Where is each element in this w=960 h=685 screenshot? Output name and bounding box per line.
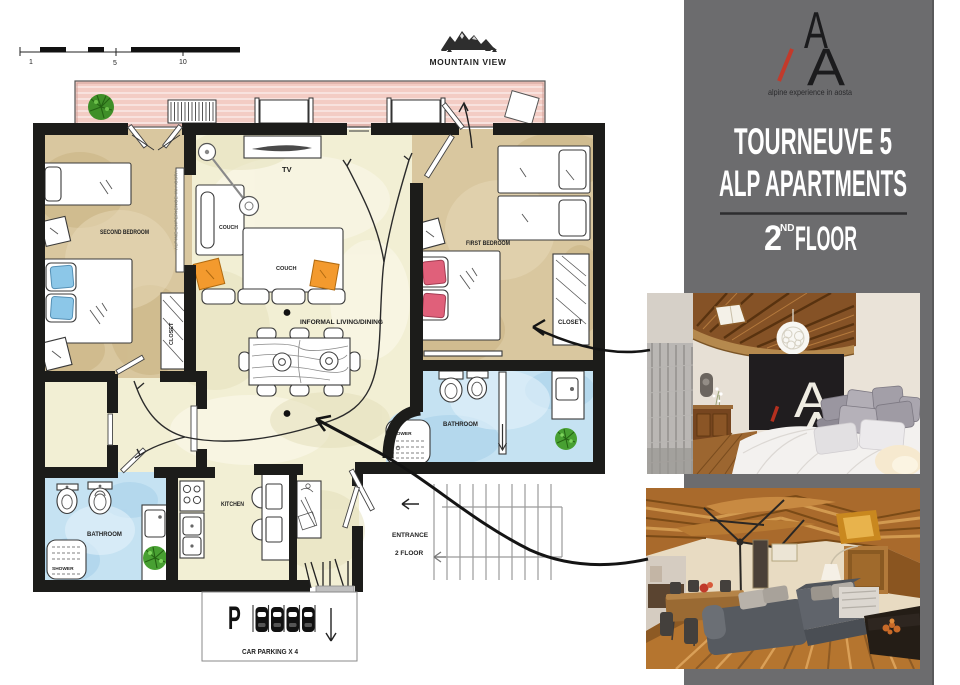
svg-text:CLOSET: CLOSET: [169, 322, 175, 345]
svg-text:ENTRANCE: ENTRANCE: [392, 532, 429, 539]
svg-text:5: 5: [113, 60, 117, 67]
svg-text:COUCH: COUCH: [276, 266, 297, 272]
svg-text:INFORMAL LIVING/DINING: INFORMAL LIVING/DINING: [300, 319, 383, 326]
svg-text:SHOWER: SHOWER: [52, 566, 74, 572]
svg-text:ALPINE EXPERIENCE IN AOSTA: ALPINE EXPERIENCE IN AOSTA: [174, 170, 179, 250]
svg-text:BATHROOM: BATHROOM: [87, 532, 122, 538]
svg-text:10: 10: [179, 59, 187, 66]
svg-text:FIRST BEDROOM: FIRST BEDROOM: [466, 240, 510, 247]
svg-text:1: 1: [29, 59, 33, 66]
svg-text:KITCHEN: KITCHEN: [221, 502, 244, 508]
svg-text:SECOND BEDROOM: SECOND BEDROOM: [100, 229, 149, 236]
svg-text:TV: TV: [282, 165, 292, 174]
svg-text:COUCH: COUCH: [219, 225, 238, 231]
svg-text:CLOSET: CLOSET: [558, 320, 583, 326]
svg-text:P: P: [228, 600, 241, 636]
svg-text:2 FLOOR: 2 FLOOR: [395, 550, 423, 557]
svg-text:BATHROOM: BATHROOM: [443, 422, 478, 428]
svg-text:CAR PARKING X 4: CAR PARKING X 4: [242, 647, 298, 656]
svg-text:MOUNTAIN VIEW: MOUNTAIN VIEW: [429, 57, 506, 67]
